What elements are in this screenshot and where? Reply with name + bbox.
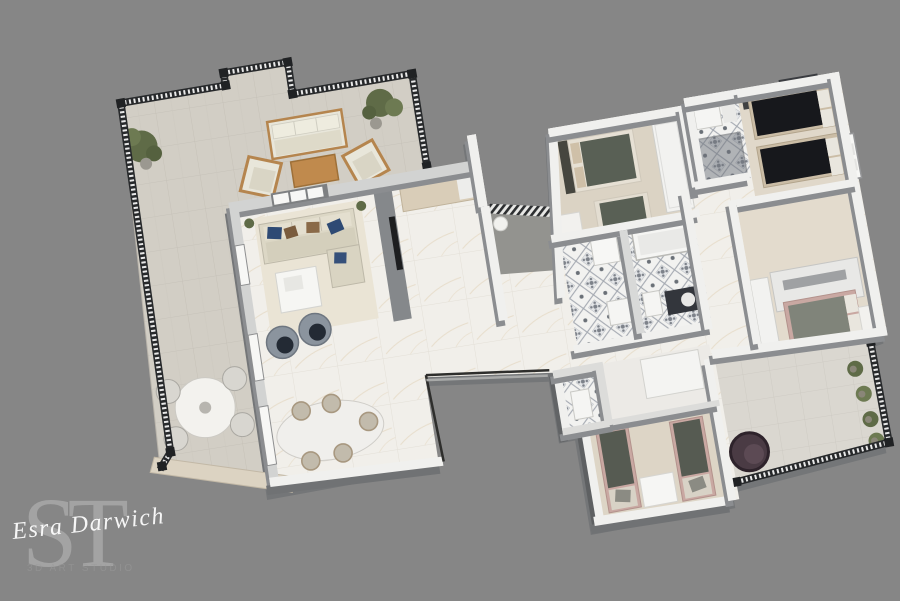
svg-text:3D ART STUDIO: 3D ART STUDIO [27,563,135,574]
